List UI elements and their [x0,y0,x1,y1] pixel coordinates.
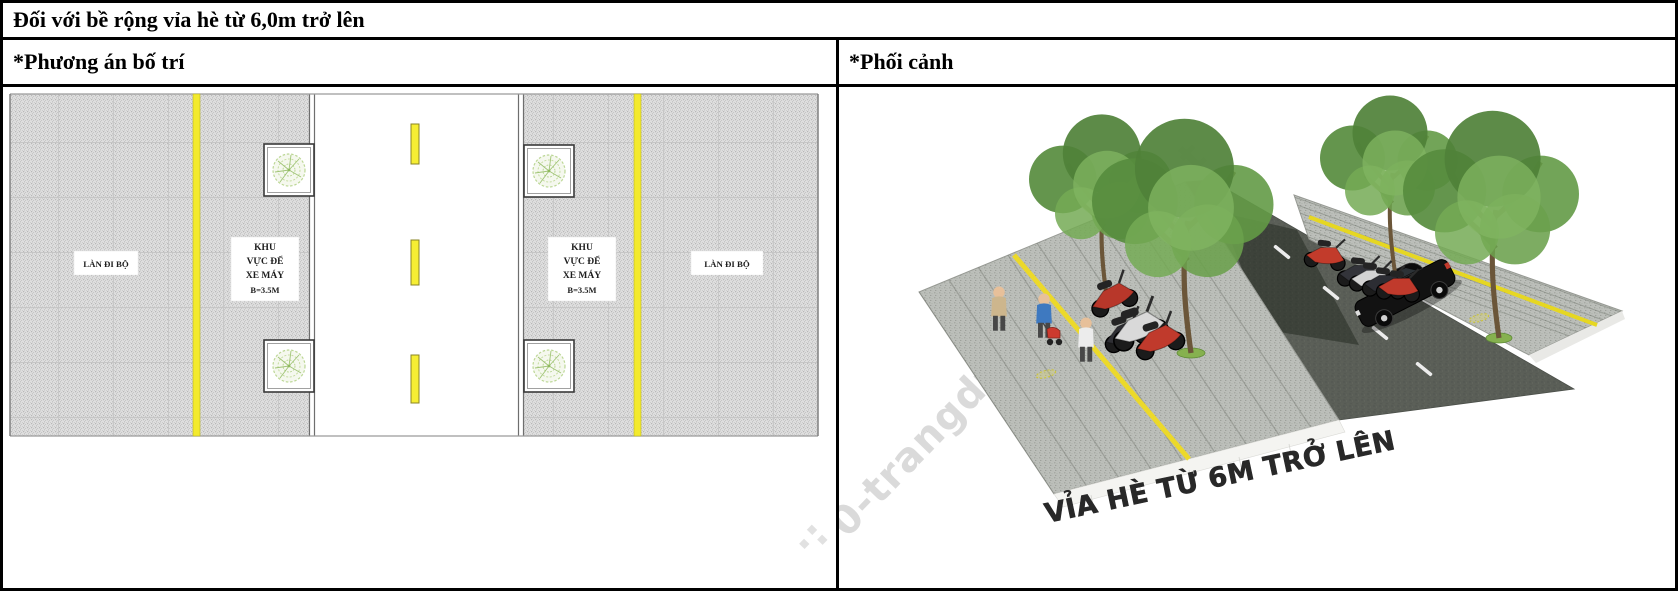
moto-zone-label-right: KHU VỰC ĐỂ XE MÁY B=3.5M [548,237,616,301]
layout-plan-header: *Phương án bố trí [13,49,184,75]
document-table: Đối với bề rộng vỉa hè từ 6,0m trở lên *… [0,0,1678,591]
svg-text:KHU: KHU [571,243,593,253]
perspective-header: *Phối cảnh [849,49,954,75]
plan-drawing: KHU VỰC ĐỂ XE MÁY B=3.5M KHU VỰC ĐỂ XE M… [3,87,836,588]
svg-text:XE MÁY: XE MÁY [246,269,284,281]
watermark-fragment: ·: [783,512,836,566]
moto-zone-label-left: KHU VỰC ĐỂ XE MÁY B=3.5M [231,237,299,301]
table-title-row: Đối với bề rộng vỉa hè từ 6,0m trở lên [3,3,1675,40]
plan-yellow-line-left [193,94,200,436]
perspective-cell: 0-trangdt t [839,87,1675,588]
tree-symbol-icon [264,144,314,196]
plan-yellow-line-right [634,94,641,436]
walk-lane-label-right: LÀN ĐI BỘ [691,251,763,275]
column-header-row: *Phương án bố trí *Phối cảnh [3,40,1675,87]
svg-text:XE MÁY: XE MÁY [563,269,601,281]
table-title: Đối với bề rộng vỉa hè từ 6,0m trở lên [13,7,365,33]
svg-text:LÀN ĐI BỘ: LÀN ĐI BỘ [83,259,129,269]
layout-plan-cell: KHU VỰC ĐỂ XE MÁY B=3.5M KHU VỰC ĐỂ XE M… [3,87,839,588]
svg-text:LÀN ĐI BỘ: LÀN ĐI BỘ [704,259,750,269]
svg-text:KHU: KHU [254,243,276,253]
walk-lane-label-left: LÀN ĐI BỘ [74,251,138,275]
tree-symbol-icon [524,340,574,392]
drawing-row: KHU VỰC ĐỂ XE MÁY B=3.5M KHU VỰC ĐỂ XE M… [3,87,1675,588]
svg-text:B=3.5M: B=3.5M [250,285,279,295]
tree-symbol-icon [524,145,574,197]
column-header-left: *Phương án bố trí [3,40,839,84]
svg-text:B=3.5M: B=3.5M [567,285,596,295]
tree-symbol-icon [264,340,314,392]
perspective-render: 0-trangdt t [839,87,1675,588]
column-header-right: *Phối cảnh [839,40,1675,84]
